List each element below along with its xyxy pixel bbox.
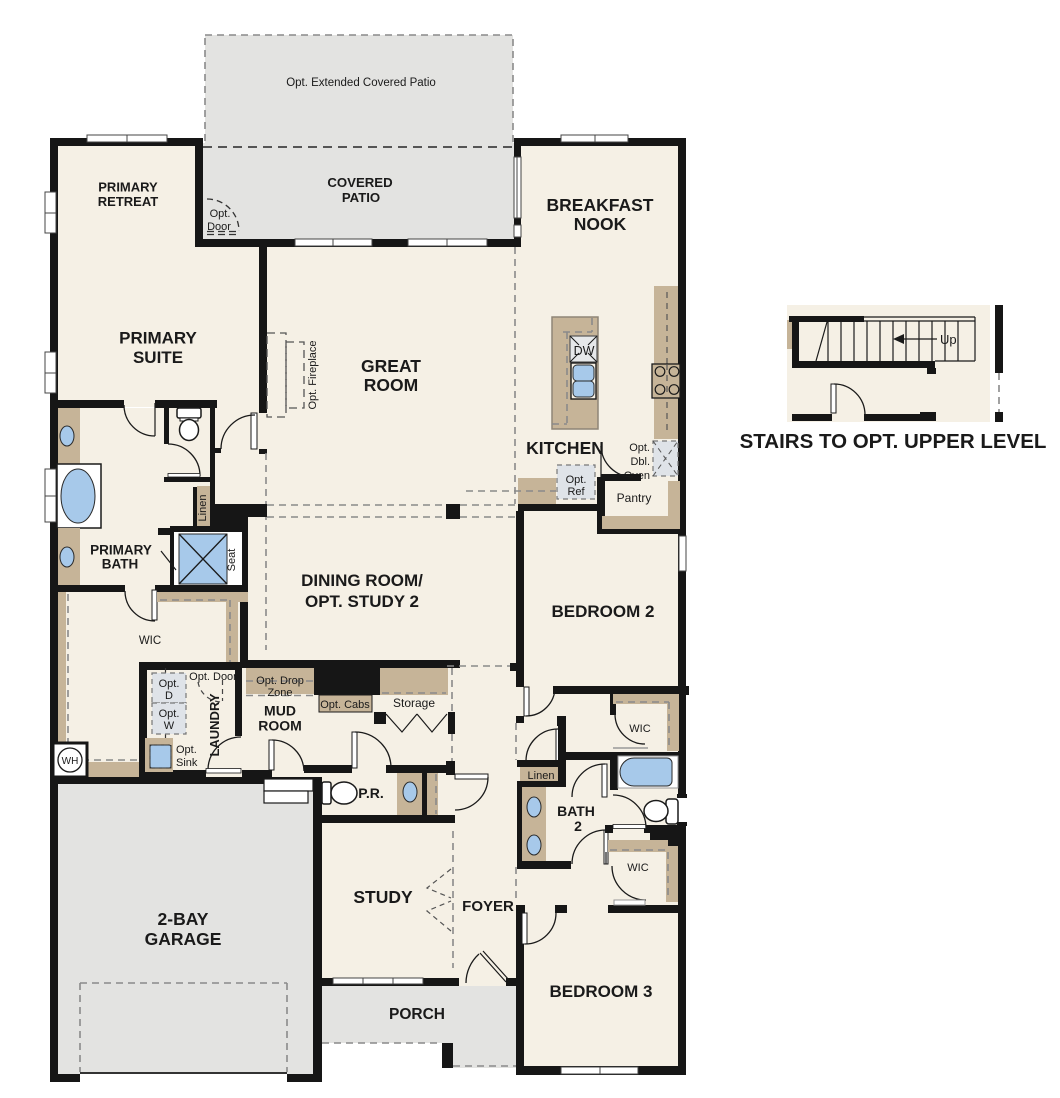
svg-text:Seat: Seat [226, 549, 238, 572]
svg-text:DINING ROOM/: DINING ROOM/ [301, 571, 423, 590]
svg-text:Opt. Cabs: Opt. Cabs [320, 699, 370, 711]
svg-text:2: 2 [574, 818, 582, 834]
svg-text:BEDROOM 3: BEDROOM 3 [550, 982, 653, 1001]
svg-text:STAIRS TO OPT. UPPER LEVEL: STAIRS TO OPT. UPPER LEVEL [740, 430, 1047, 453]
svg-text:NOOK: NOOK [574, 214, 627, 234]
svg-text:PATIO: PATIO [342, 190, 380, 205]
svg-text:WIC: WIC [629, 723, 650, 735]
svg-text:PRIMARY: PRIMARY [98, 180, 158, 195]
svg-text:STUDY: STUDY [353, 887, 413, 907]
svg-text:2-BAY: 2-BAY [158, 909, 209, 929]
svg-text:Opt.: Opt. [629, 442, 650, 454]
svg-text:Opt.: Opt. [159, 708, 180, 720]
svg-text:RETREAT: RETREAT [98, 194, 158, 209]
svg-text:ROOM: ROOM [364, 375, 418, 395]
svg-text:SUITE: SUITE [133, 348, 183, 367]
svg-text:WIC: WIC [627, 862, 648, 874]
svg-text:GREAT: GREAT [361, 356, 421, 376]
svg-text:Sink: Sink [176, 757, 198, 769]
svg-text:GARAGE: GARAGE [145, 929, 222, 949]
svg-text:WH: WH [62, 756, 79, 767]
svg-text:D: D [165, 690, 173, 702]
svg-text:KITCHEN: KITCHEN [526, 438, 604, 458]
svg-text:PORCH: PORCH [389, 1006, 445, 1023]
svg-text:Pantry: Pantry [617, 491, 652, 505]
svg-text:PRIMARY: PRIMARY [90, 543, 152, 558]
svg-text:ROOM: ROOM [258, 718, 302, 734]
svg-text:COVERED: COVERED [327, 175, 392, 190]
svg-text:BATH: BATH [557, 803, 595, 819]
svg-text:BREAKFAST: BREAKFAST [547, 195, 654, 215]
svg-text:LAUNDRY: LAUNDRY [207, 693, 222, 756]
svg-text:Linen: Linen [528, 770, 555, 782]
svg-text:W: W [164, 720, 175, 732]
svg-text:Zone: Zone [267, 687, 292, 699]
svg-text:P.R.: P.R. [358, 785, 383, 801]
svg-text:FOYER: FOYER [462, 898, 514, 915]
svg-text:Storage: Storage [393, 696, 435, 710]
svg-text:Opt. Door: Opt. Door [189, 671, 237, 683]
svg-text:WIC: WIC [139, 635, 161, 647]
svg-text:Opt.: Opt. [566, 474, 587, 486]
svg-text:Up: Up [940, 332, 957, 347]
svg-text:Opt. Extended Covered Patio: Opt. Extended Covered Patio [286, 77, 436, 89]
svg-text:DW: DW [574, 344, 595, 358]
svg-text:BEDROOM 2: BEDROOM 2 [552, 602, 655, 621]
svg-text:Opt. Fireplace: Opt. Fireplace [307, 340, 319, 409]
svg-text:Dbl.: Dbl. [630, 456, 650, 468]
svg-text:Ref: Ref [567, 486, 585, 498]
svg-text:BATH: BATH [102, 557, 139, 572]
svg-text:OPT. STUDY 2: OPT. STUDY 2 [305, 592, 419, 611]
svg-text:Opt.: Opt. [159, 678, 180, 690]
svg-text:Linen: Linen [197, 495, 209, 522]
svg-text:Opt.: Opt. [210, 208, 231, 220]
svg-text:PRIMARY: PRIMARY [119, 329, 197, 348]
svg-text:Opt. Drop: Opt. Drop [256, 675, 304, 687]
svg-text:MUD: MUD [264, 703, 296, 719]
svg-text:Opt.: Opt. [176, 744, 197, 756]
